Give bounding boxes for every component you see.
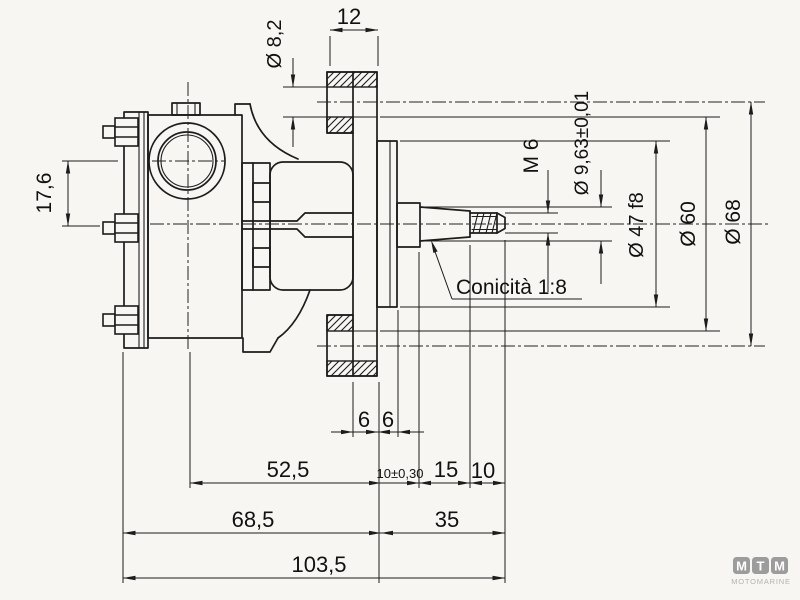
dim-port-to-flange: 52,5 — [267, 457, 310, 482]
cover-bolt-bottom — [103, 306, 138, 334]
dim-pilot-diameter: Ø 47 f8 — [626, 192, 648, 258]
dim-flange-step-b: 6 — [382, 407, 394, 432]
dimension-texts: 17,6 Ø 8,2 12 M 6 Ø 9,63±0,01 Ø 47 f8 Ø … — [33, 4, 745, 577]
dim-taper-length: 15 — [434, 457, 458, 482]
logo-subtitle: MOTOMARINE — [731, 577, 791, 586]
bottom-boss — [243, 338, 278, 352]
dim-thread-size: M 6 — [520, 138, 543, 173]
cover-bolt-middle — [103, 214, 138, 242]
extension-lines — [62, 36, 720, 583]
technical-drawing: 17,6 Ø 8,2 12 M 6 Ø 9,63±0,01 Ø 47 f8 Ø … — [0, 0, 800, 600]
dim-flange-step-a: 6 — [358, 407, 370, 432]
seal-housing — [242, 163, 270, 290]
drive-shaft — [397, 203, 505, 247]
logo-letter-2: T — [757, 559, 765, 574]
dim-holes-inner-span: Ø 60 — [677, 201, 700, 247]
body-top-step — [235, 104, 250, 115]
dim-taper-gauge-diameter: Ø 9,63±0,01 — [572, 91, 593, 195]
cover-bolt-top — [103, 118, 138, 146]
brand-logo: M T M MOTOMARINE — [731, 557, 791, 586]
dim-bolt-hole-diameter: Ø 8,2 — [264, 20, 286, 69]
neck-top-curve — [250, 104, 298, 159]
dim-shaft-overhang: 35 — [435, 507, 459, 532]
dim-body-length: 68,5 — [232, 507, 275, 532]
dim-flange-to-taper: 10±0,30 — [377, 466, 424, 481]
dim-overall-length: 103,5 — [291, 552, 346, 577]
dim-holes-center-span: Ø 68 — [722, 199, 745, 245]
neck-bottom-curve — [278, 290, 310, 338]
dim-port-offset: 17,6 — [33, 173, 56, 214]
label-taper-note: Conicità 1:8 — [456, 276, 567, 299]
logo-letter-1: M — [736, 559, 747, 574]
dim-thread-length: 10 — [471, 458, 495, 483]
dimension-lines — [68, 30, 751, 578]
bearing-tube — [270, 162, 353, 290]
logo-letter-3: M — [774, 559, 785, 574]
top-plug — [172, 103, 200, 115]
shaft-shoulder — [397, 203, 420, 247]
shaft-thread — [470, 213, 505, 233]
dim-flange-thickness: 12 — [337, 4, 361, 29]
impeller-shaft — [242, 213, 353, 237]
pump-body — [148, 103, 310, 352]
